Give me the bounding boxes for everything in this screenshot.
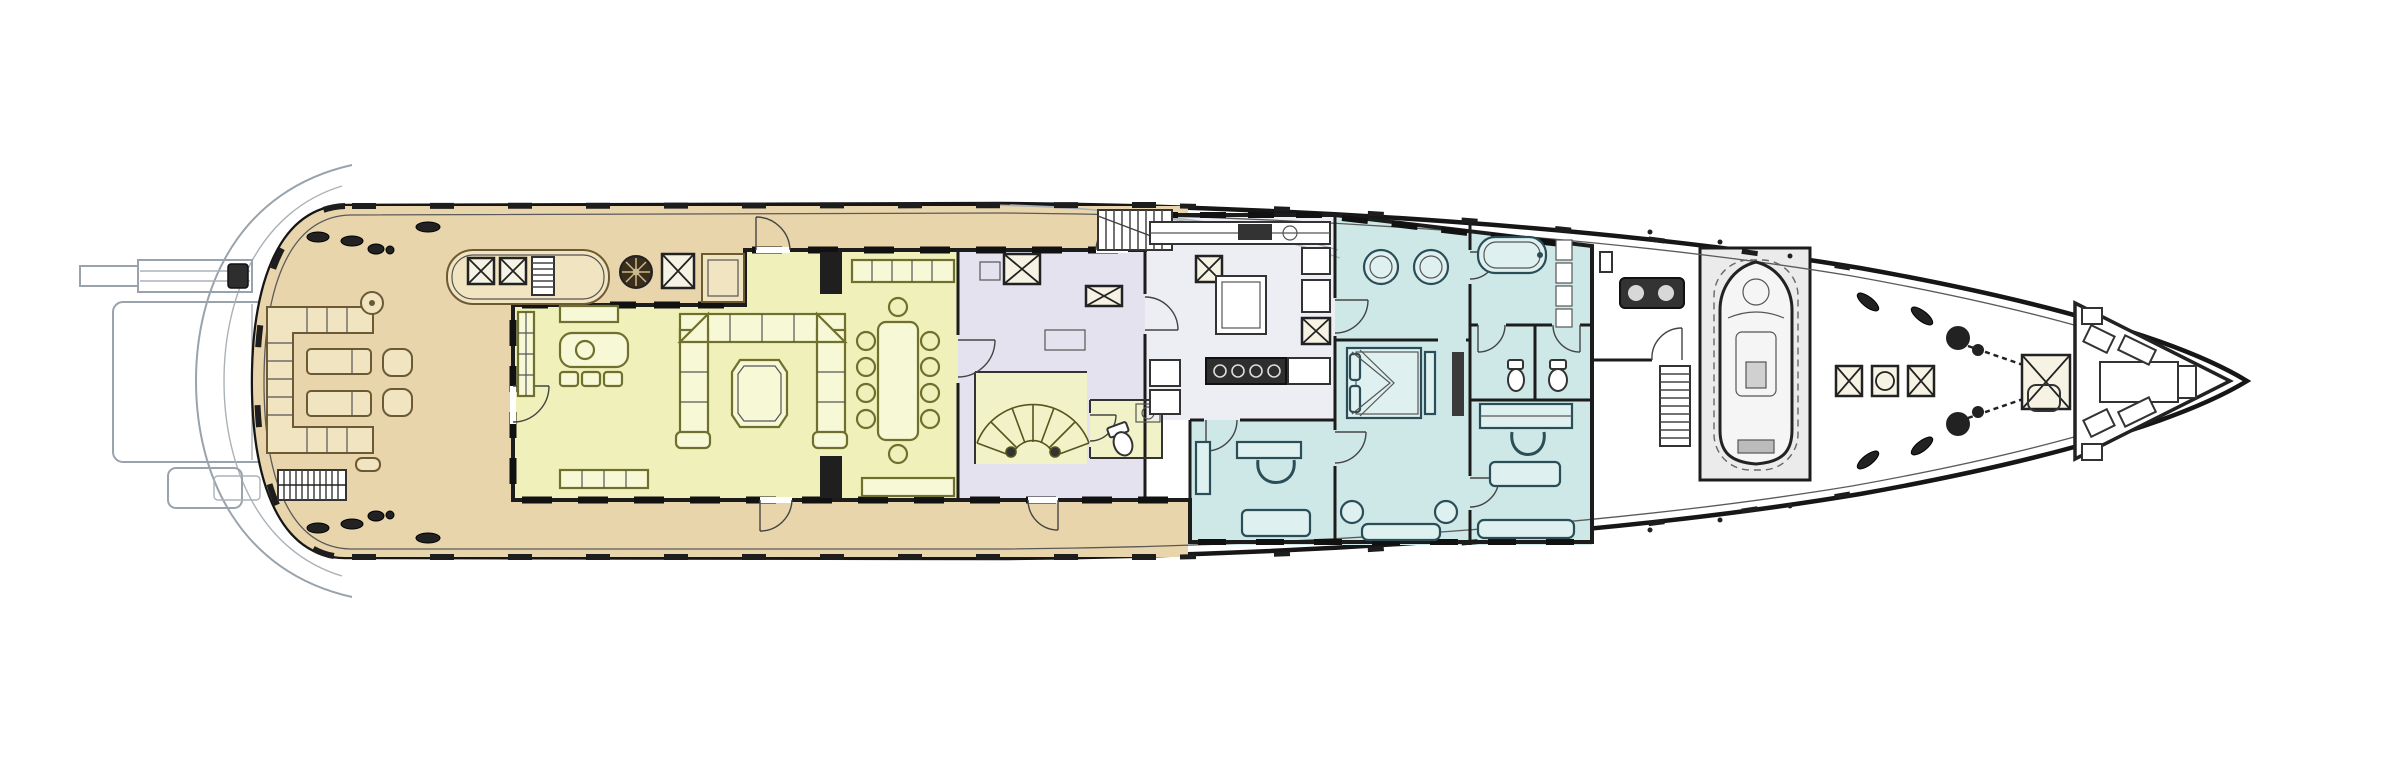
companionway-ladder — [532, 257, 554, 295]
study-table — [1490, 462, 1560, 486]
galley-island — [1216, 276, 1266, 334]
deck-armchair — [383, 349, 412, 376]
bow-seat — [2082, 444, 2102, 460]
table-dot — [369, 300, 375, 306]
tender — [1720, 262, 1792, 464]
locker — [1302, 248, 1330, 274]
skylight-hatch-bay — [447, 250, 609, 304]
footboard-bench — [1425, 352, 1435, 414]
range-hob — [1206, 358, 1286, 384]
deck-armchair — [383, 389, 412, 416]
wc-stbd — [1549, 360, 1567, 391]
round-cocktail-table-2 — [356, 458, 380, 471]
pillar-cabinet — [820, 456, 842, 498]
dining-sideboard-stbd — [862, 478, 954, 496]
armrest — [813, 432, 847, 448]
deck-hatch — [468, 258, 494, 284]
elevator — [1004, 254, 1040, 284]
round-basin-stbd — [1414, 250, 1448, 284]
chain-hatch — [2022, 355, 2070, 411]
stateroom-tv-cabinet — [1452, 352, 1464, 416]
counter-aft — [1288, 358, 1330, 384]
bathtub — [1478, 237, 1546, 273]
tender-engine — [1738, 440, 1774, 453]
ottoman — [604, 372, 622, 386]
study-sofa — [1478, 520, 1574, 538]
deck-hatch-row — [1836, 366, 1934, 396]
stateroom-sofa — [1362, 524, 1440, 540]
crew-stair-down — [1660, 366, 1690, 446]
dumbwaiter — [1086, 286, 1122, 306]
mushroom-vent — [620, 256, 652, 288]
bow-table — [2100, 362, 2178, 402]
round-basin-port — [1364, 250, 1398, 284]
deck-plan-page — [0, 0, 2400, 769]
bow-seat — [2178, 366, 2196, 398]
bow-seat — [2082, 308, 2102, 324]
dining-table — [878, 322, 918, 440]
deck-hatch-large — [662, 254, 694, 288]
dishwasher — [1150, 360, 1180, 386]
linen-shelves — [1556, 240, 1572, 327]
octagonal-coffee-table — [732, 360, 787, 427]
loveseat-cushion — [576, 341, 594, 359]
dining-sideboard — [852, 260, 954, 282]
office-table — [1242, 510, 1310, 536]
deck-hatch — [1908, 366, 1934, 396]
galley-appliance — [1238, 224, 1272, 240]
sun-lounger — [307, 349, 371, 374]
cabinet — [1150, 390, 1180, 414]
bow-seating — [2075, 303, 2230, 460]
ottoman — [582, 372, 600, 386]
king-bed — [1347, 348, 1435, 418]
stool — [1341, 501, 1363, 523]
office-cabinet — [1196, 442, 1210, 494]
aft-step — [168, 468, 242, 508]
crew-locker — [1600, 252, 1612, 272]
gangway-tip — [80, 266, 138, 286]
tender-console — [1746, 362, 1766, 388]
wc-port — [1508, 360, 1524, 391]
stairs-to-platform — [278, 470, 346, 500]
deck-hatch-round — [1872, 366, 1898, 396]
armrest — [676, 432, 710, 448]
stool — [1435, 501, 1457, 523]
deck-hatch — [500, 258, 526, 284]
capstan-winch — [228, 264, 248, 288]
pillar-cabinet — [820, 252, 842, 294]
deck-hatch — [1836, 366, 1862, 396]
locker — [1302, 280, 1330, 312]
salon-sideboard — [560, 306, 618, 322]
office-desk — [1237, 442, 1301, 458]
sun-lounger — [307, 391, 371, 416]
dumbwaiter-galley — [1302, 318, 1330, 344]
ottoman — [560, 372, 578, 386]
skylight-frame — [702, 254, 744, 302]
deck-plan-drawing — [0, 0, 2400, 769]
